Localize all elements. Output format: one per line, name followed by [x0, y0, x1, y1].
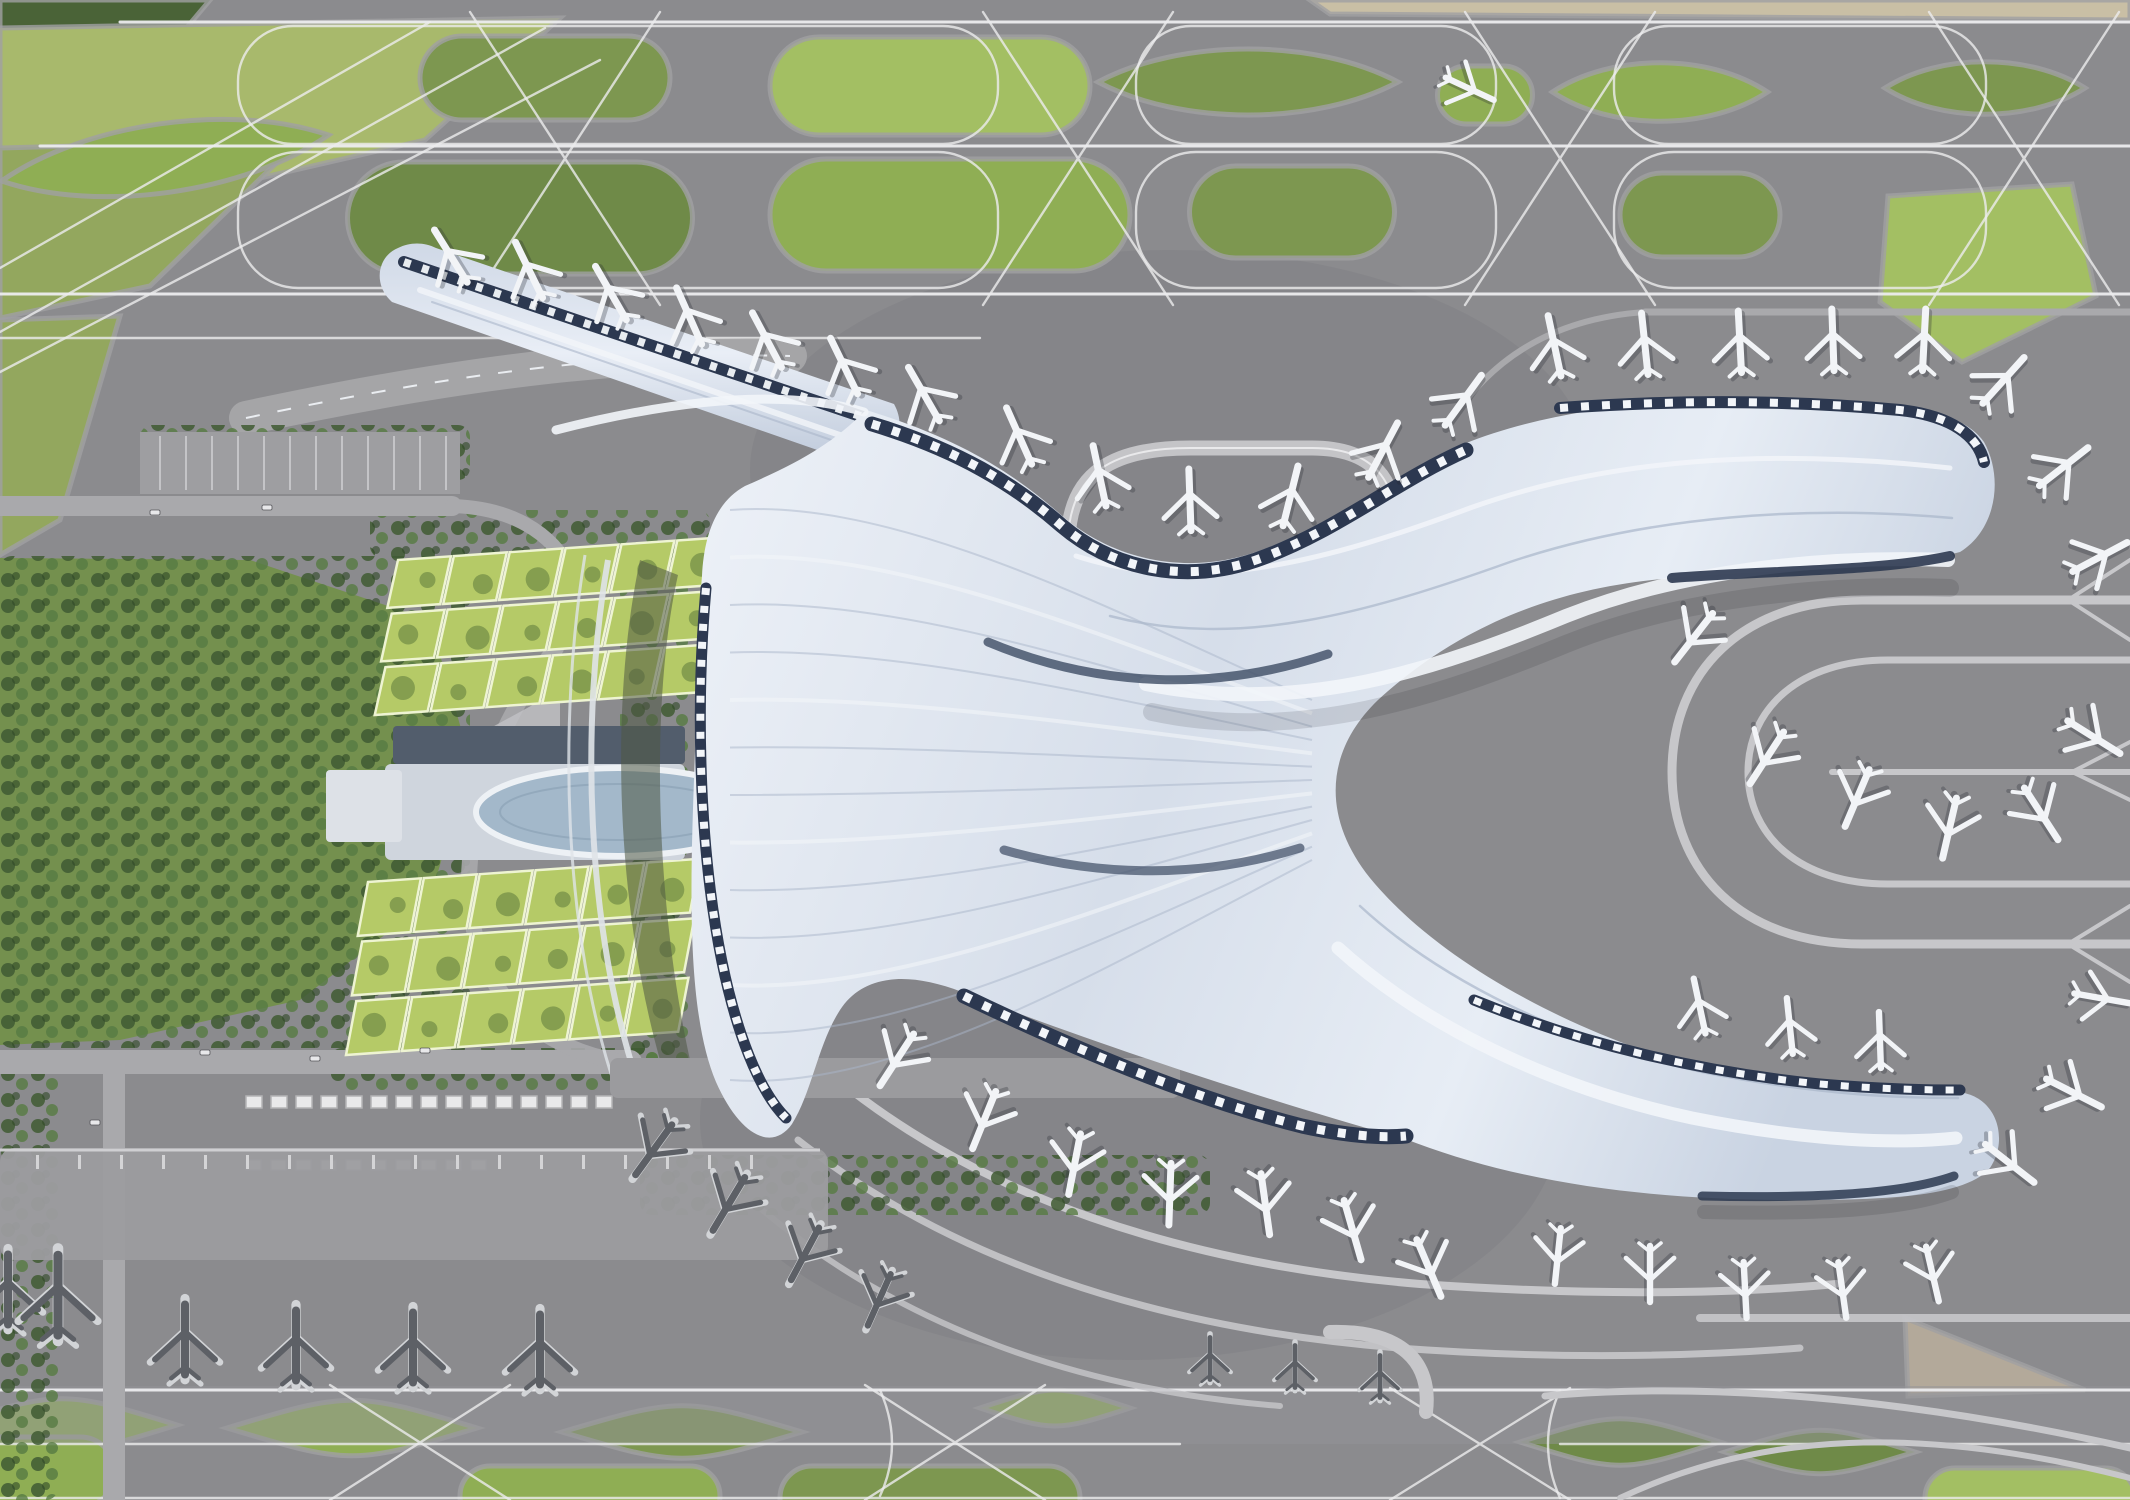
- service-shed: [571, 1096, 587, 1108]
- surface-parking-lot: [140, 432, 460, 494]
- green-island: [1190, 166, 1395, 258]
- green-island: [1310, 0, 2130, 20]
- service-shed: [471, 1096, 487, 1108]
- green-island: [460, 1466, 720, 1500]
- car: [310, 1056, 320, 1061]
- service-shed: [246, 1096, 262, 1108]
- car: [90, 1120, 100, 1125]
- service-shed: [296, 1096, 312, 1108]
- car: [150, 510, 160, 515]
- service-shed: [596, 1096, 612, 1108]
- airport-masterplan-svg: [0, 0, 2130, 1500]
- airport-aerial-render: [0, 0, 2130, 1500]
- service-shed: [346, 1096, 362, 1108]
- green-island: [1620, 173, 1780, 257]
- service-shed: [546, 1096, 562, 1108]
- service-shed: [396, 1096, 412, 1108]
- service-shed: [521, 1096, 537, 1108]
- service-shed: [271, 1096, 287, 1108]
- car: [262, 505, 272, 510]
- green-island: [770, 159, 1130, 271]
- car: [200, 1050, 210, 1055]
- service-shed: [421, 1096, 437, 1108]
- service-shed: [371, 1096, 387, 1108]
- service-shed: [321, 1096, 337, 1108]
- service-shed: [496, 1096, 512, 1108]
- car: [420, 1048, 430, 1053]
- service-shed: [446, 1096, 462, 1108]
- green-island: [770, 37, 1090, 135]
- gtc-annex: [326, 770, 402, 842]
